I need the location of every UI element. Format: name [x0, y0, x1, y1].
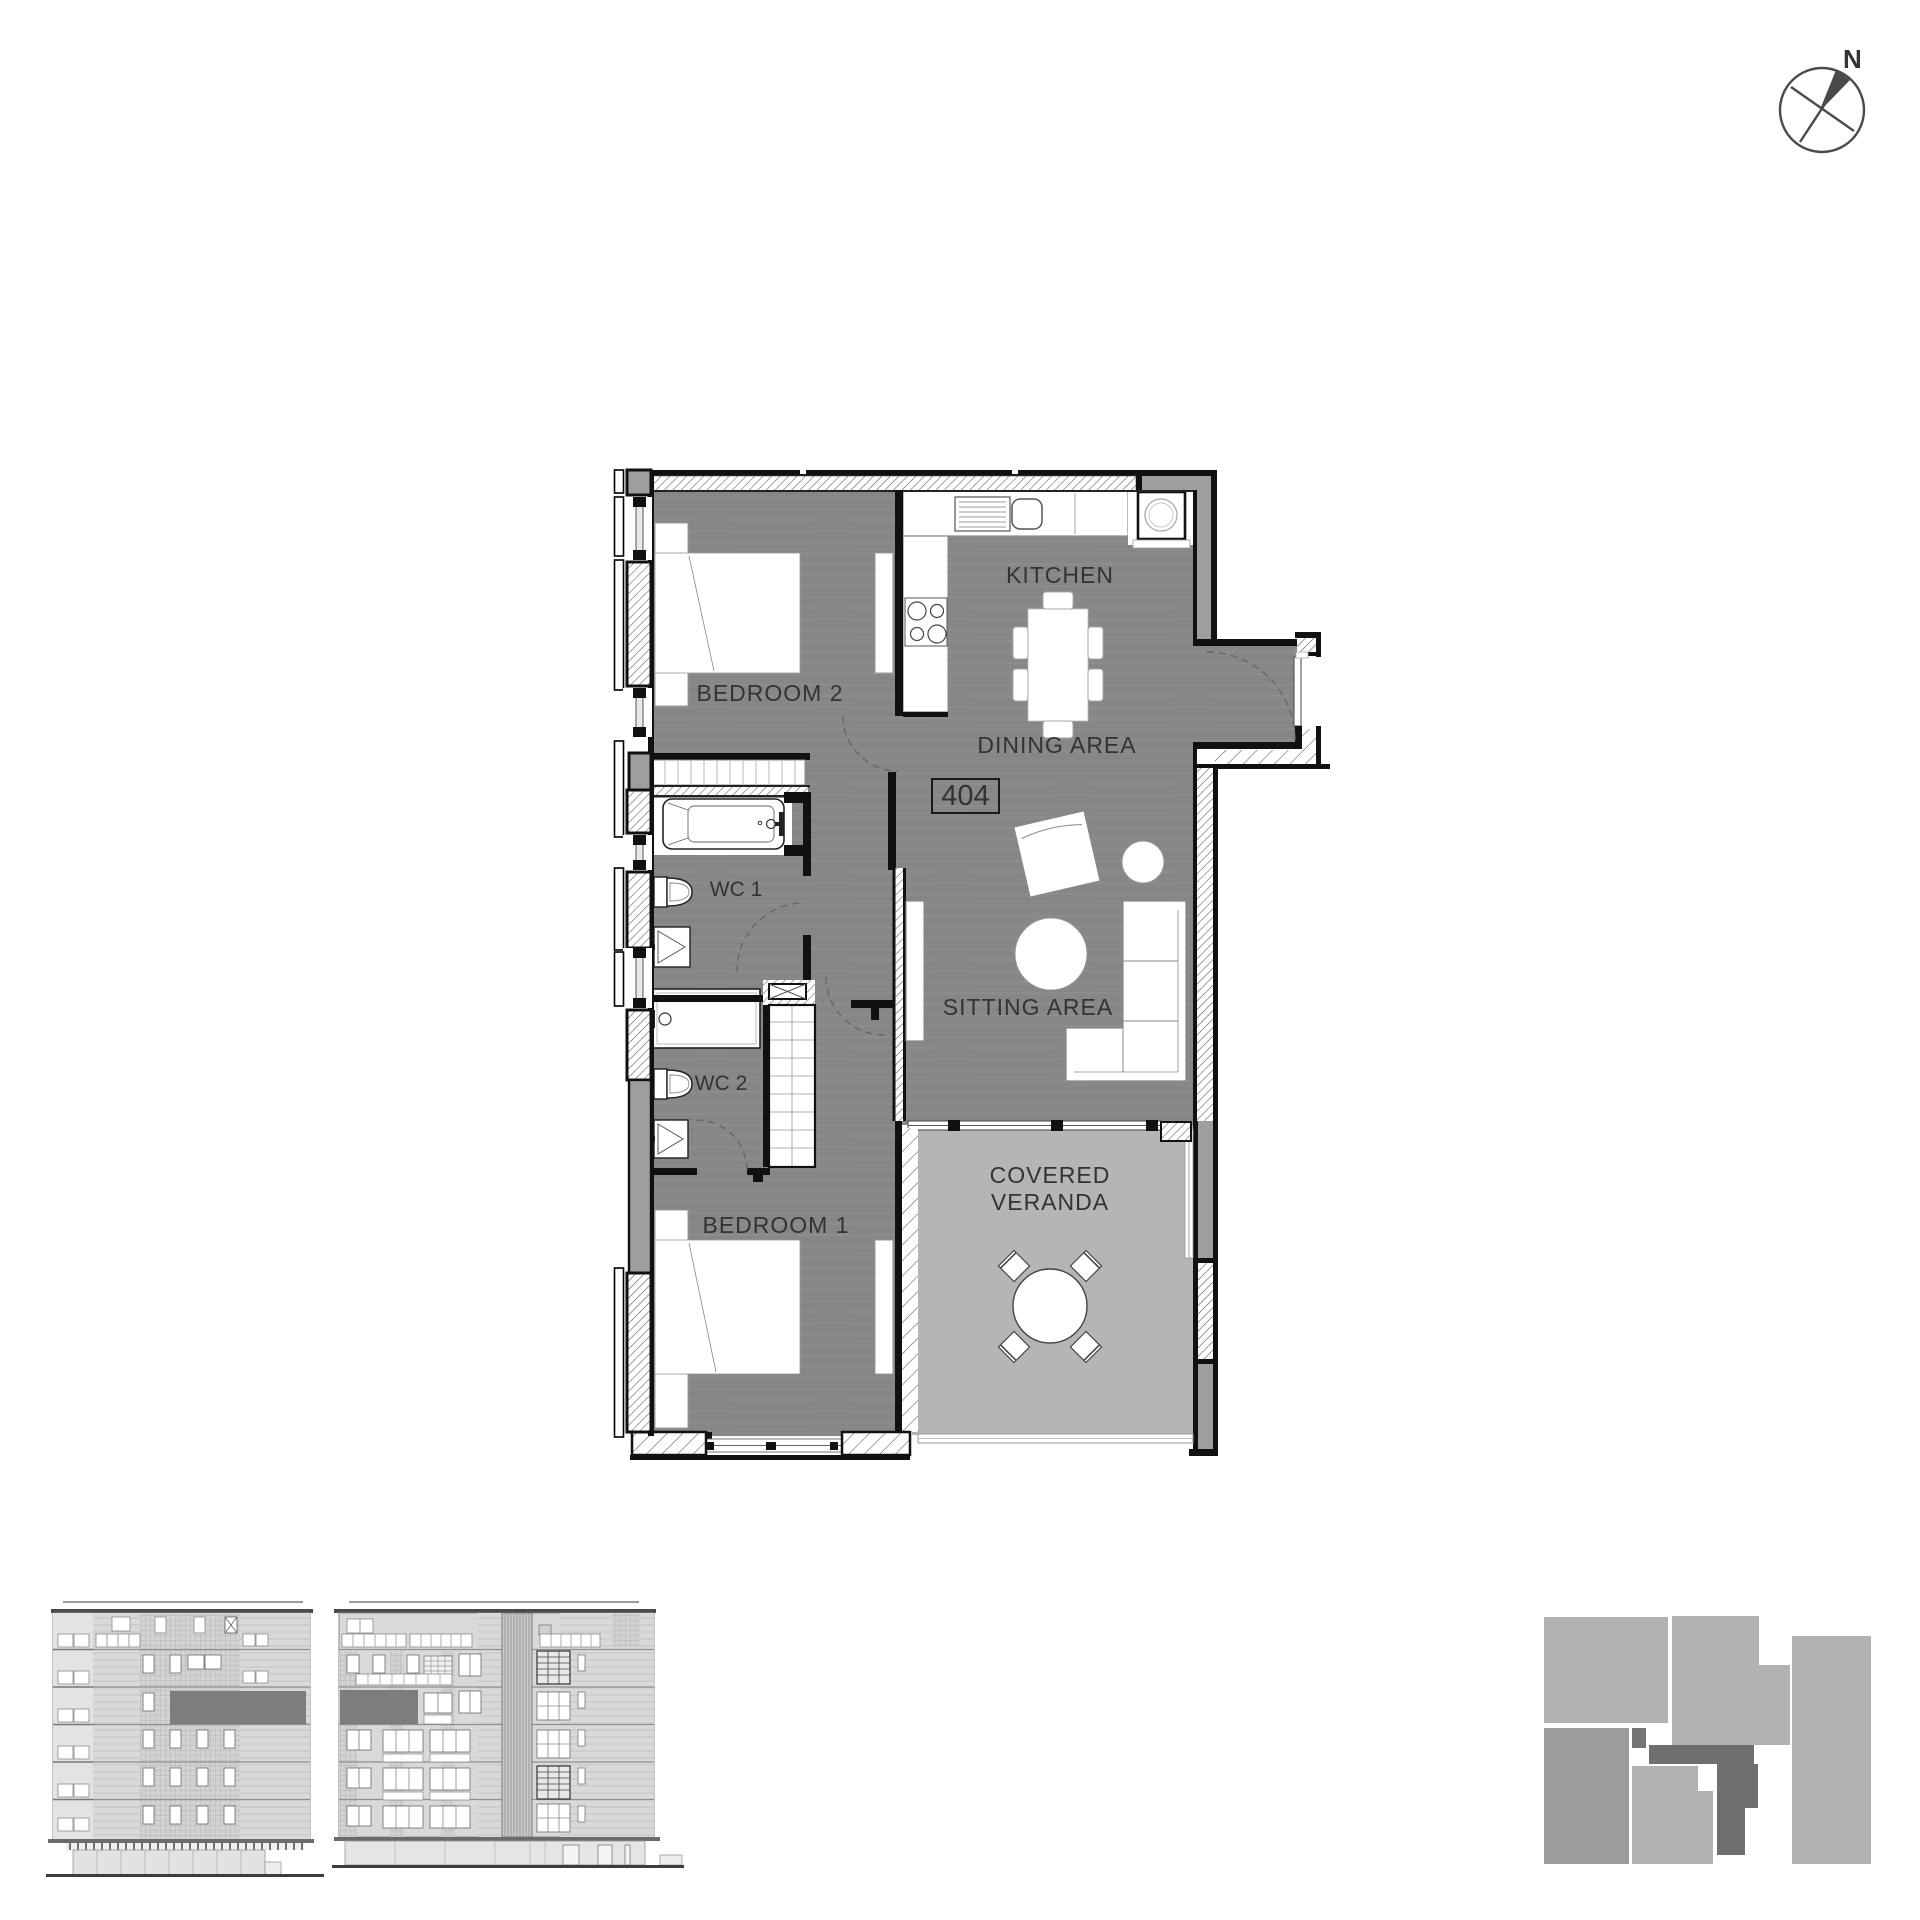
svg-text:COVERED: COVERED [990, 1162, 1111, 1188]
svg-text:KITCHEN: KITCHEN [1006, 562, 1114, 588]
svg-text:N: N [1843, 44, 1862, 74]
svg-text:BEDROOM 1: BEDROOM 1 [702, 1212, 849, 1238]
svg-text:SITTING AREA: SITTING AREA [943, 994, 1113, 1020]
svg-text:DINING AREA: DINING AREA [977, 732, 1136, 758]
svg-text:WC 1: WC 1 [710, 878, 763, 901]
svg-text:404: 404 [941, 780, 989, 812]
svg-text:BEDROOM 2: BEDROOM 2 [696, 680, 843, 706]
svg-text:VERANDA: VERANDA [991, 1189, 1109, 1215]
svg-text:WC 2: WC 2 [695, 1072, 748, 1095]
